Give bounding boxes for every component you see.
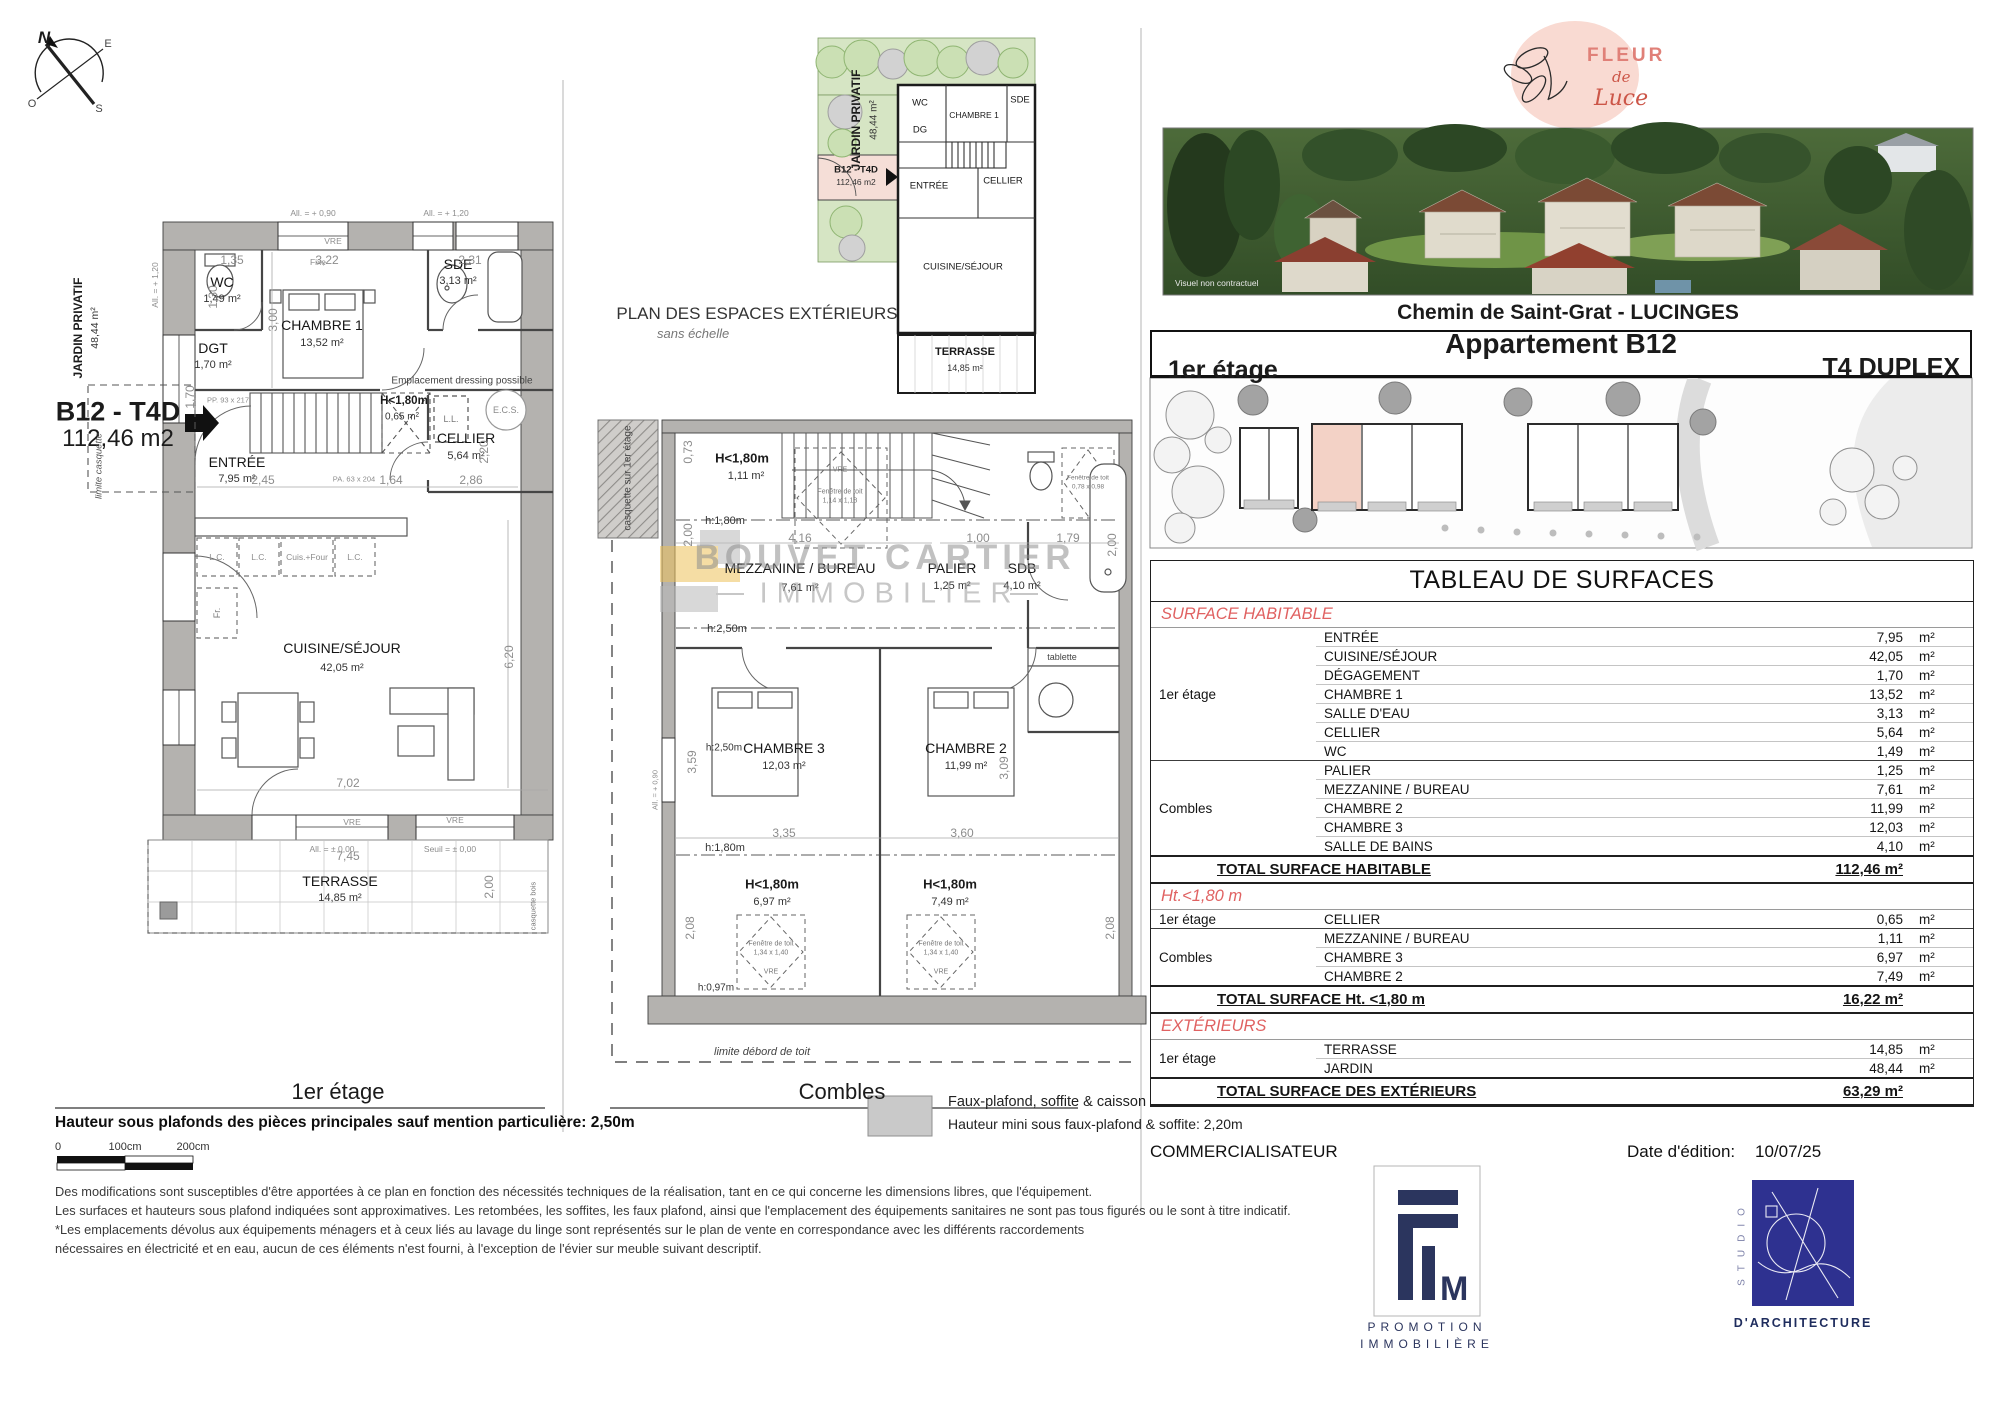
surface-table-cell: m² <box>1911 818 1973 837</box>
fen-c2-size: 1,34 x 1,40 <box>924 950 959 957</box>
surface-table-cell: 1er étage <box>1151 1040 1316 1079</box>
room-h180-area: 0,65 m² <box>385 412 419 423</box>
surface-table-cell: TOTAL SURFACE HABITABLE112,46 m² <box>1151 856 1973 883</box>
ext-terrasse-label: TERRASSE <box>935 346 995 358</box>
surface-table-cell: m² <box>1911 761 1973 780</box>
combles-h111-label: H<1,80m <box>715 451 769 466</box>
dim-200l: 2,00 <box>681 523 695 546</box>
edition-date-label: Date d'édition: <box>1627 1142 1735 1162</box>
dim-130: 1,30 <box>206 285 220 308</box>
surface-table-cell: m² <box>1911 799 1973 818</box>
surface-table-cell: m² <box>1911 929 1973 948</box>
casquette-label: casquette sur 1er étage <box>623 425 634 530</box>
fleur-logo-word1: FLEUR <box>1587 45 1665 67</box>
surface-table-cell: CHAMBRE 3 <box>1316 818 1745 837</box>
fim-sub1: PROMOTION <box>1368 1320 1487 1334</box>
fen-c2-name: Fenêtre de toit <box>918 941 963 948</box>
surface-table-cell: m² <box>1911 967 1973 987</box>
ext-ch1-label: CHAMBRE 1 <box>949 110 999 120</box>
surface-table-cell: SALLE DE BAINS <box>1316 837 1745 857</box>
svg-text:M: M <box>1440 1270 1468 1308</box>
studio-architecture-logo <box>1752 1180 1854 1306</box>
surface-table-cell: Ht.<1,80 m <box>1151 883 1973 910</box>
fen-a-vre: VRE <box>833 467 847 474</box>
surface-table-cell: ComblesMEZZANINE / BUREAU1,11m² <box>1151 929 1973 948</box>
scale-100: 100cm <box>108 1141 141 1153</box>
combles-h749-label: H<1,80m <box>923 877 977 892</box>
combles-h697-label: H<1,80m <box>745 877 799 892</box>
surface-table-cell: SURFACE HABITABLE <box>1151 602 1973 628</box>
counter-four-label: Cuis.+Four <box>286 552 328 562</box>
surface-table-cell: SURFACE HABITABLE <box>1151 602 1973 628</box>
surface-table-cell: 6,97 <box>1745 948 1911 967</box>
combles-h097-label: h:0,97m <box>698 983 734 994</box>
ceiling-height-note: Hauteur sous plafonds des pièces princip… <box>55 1114 635 1132</box>
room-terrasse-area: 14,85 m² <box>318 892 361 904</box>
dim-620: 6,20 <box>502 645 516 668</box>
room-entree-label: ENTRÉE <box>209 454 266 470</box>
combles-h749-area: 7,49 m² <box>931 896 968 908</box>
counter-lc2-label: L.C. <box>251 552 267 562</box>
surface-table-cell: SALLE D'EAU <box>1316 704 1745 723</box>
surface-table-cell: WC <box>1316 742 1745 761</box>
counter-lc1-label: L.C. <box>209 552 225 562</box>
surface-table-cell: 1er étage <box>1151 628 1316 761</box>
disclaimer-line3: *Les emplacements dévolus aux équipement… <box>55 1222 1084 1237</box>
ext-jardin-label: JARDIN PRIVATIF <box>849 70 863 171</box>
dim-073: 0,73 <box>681 440 695 463</box>
frigo-label: Fr. <box>212 608 222 619</box>
tablette-label: tablette <box>1047 652 1077 662</box>
surface-table-cell: CHAMBRE 2 <box>1316 799 1745 818</box>
surface-table-cell: CHAMBRE 3 <box>1316 948 1745 967</box>
dim-309: 3,09 <box>997 756 1011 779</box>
surface-table-cell: 1,49 <box>1745 742 1911 761</box>
combles-ch2-label: CHAMBRE 2 <box>925 740 1007 756</box>
surface-table-cell: m² <box>1911 780 1973 799</box>
compass-o: O <box>28 98 37 110</box>
address-line: Chemin de Saint-Grat - LUCINGES <box>1397 301 1739 325</box>
surface-table-cell: m² <box>1911 837 1973 857</box>
surface-table-cell: 1,70 <box>1745 666 1911 685</box>
aerial-photo <box>1163 122 1973 295</box>
dim-135: 1,35 <box>220 253 243 267</box>
ext-dg-label: DG <box>913 125 927 136</box>
edition-date-value: 10/07/25 <box>1755 1142 1821 1162</box>
combles-ch3-area: 12,03 m² <box>762 760 805 772</box>
floorplan-sheet: M N E S O JARDIN PRIVATIF 48,44 m² B12 -… <box>0 0 2000 1413</box>
surface-table-cell: m² <box>1911 723 1973 742</box>
surface-table-cell: TERRASSE <box>1316 1040 1745 1059</box>
surface-table-cell: 13,52 <box>1745 685 1911 704</box>
combles-h250a-label: h:2,50m <box>707 623 747 635</box>
dim-359: 3,59 <box>685 750 699 773</box>
surface-table-cell: 11,99 <box>1745 799 1911 818</box>
vre-bottom1-label: VRE <box>343 817 360 827</box>
counter-lc3-label: L.C. <box>347 552 363 562</box>
surface-table-cell: TOTAL SURFACE Ht. <1,80 m <box>1151 986 1745 1013</box>
ext-cuisine-label: CUISINE/SÉJOUR <box>923 262 1003 273</box>
surface-table-cell: m² <box>1911 1059 1973 1079</box>
seuil-label: Seuil = ± 0,00 <box>424 844 476 854</box>
surface-table-cell: TOTAL SURFACE HABITABLE <box>1151 856 1745 883</box>
dressing-note: Emplacement dressing possible <box>391 376 532 387</box>
watermark-line2: IMMOBILIER <box>760 578 1021 611</box>
dim-200r: 2,00 <box>1105 533 1119 556</box>
apartment-floor: 1er étage <box>1168 356 1278 385</box>
ext-jardin-area: 48,44 m² <box>869 100 880 139</box>
dim-170: 1,70 <box>183 385 197 408</box>
room-h180-label: H<1,80m <box>380 395 428 407</box>
surface-table-cell: m² <box>1911 647 1973 666</box>
disclaimer-line4: nécessaires en électricité et en eau, au… <box>55 1241 762 1256</box>
compass-e: E <box>104 38 111 50</box>
surface-table-cell: Combles <box>1151 929 1316 987</box>
surface-table-cell: 7,49 <box>1745 967 1911 987</box>
studio-vertical-label: STUDIO <box>1737 1200 1748 1286</box>
jardin-privatif-label: JARDIN PRIVATIF <box>71 278 85 379</box>
surface-table-cell: 5,64 <box>1745 723 1911 742</box>
room-cuisine-area: 42,05 m² <box>320 662 363 674</box>
dim-335: 3,35 <box>772 826 795 840</box>
combles-h250b-label: h:2,50m <box>706 743 742 754</box>
apartment-type: T4 DUPLEX <box>1822 354 1960 383</box>
dim-322: 3,22 <box>315 253 338 267</box>
ext-wc-label: WC <box>912 98 928 109</box>
door-pp-tag: PP. 93 x 217 <box>207 396 249 405</box>
dim-745: 7,45 <box>336 849 359 863</box>
room-sde-area: 3,13 m² <box>439 275 476 287</box>
dim-208l: 2,08 <box>683 916 697 939</box>
surface-table-cell: 0,65 <box>1745 910 1911 929</box>
room-terrasse-label: TERRASSE <box>302 873 377 889</box>
legend-line2: Hauteur mini sous faux-plafond & soffite… <box>948 1116 1243 1132</box>
surface-table-cell: m² <box>1911 704 1973 723</box>
apartment-title: Appartement B12 <box>1445 328 1677 360</box>
dim-360: 3,60 <box>950 826 973 840</box>
exterior-plan-heading: PLAN DES ESPACES EXTÉRIEURS <box>616 304 897 324</box>
scale-200: 200cm <box>176 1141 209 1153</box>
surface-table-cell: 112,46 m² <box>1745 856 1911 883</box>
surface-table-cell: 7,95 <box>1745 628 1911 647</box>
limite-casquette-label: limite casquette <box>94 433 105 499</box>
scale-bar <box>57 1156 193 1170</box>
combles-h180b-label: h:1,80m <box>705 842 745 854</box>
surface-table-cell: m² <box>1911 948 1973 967</box>
disclaimer-line2: Les surfaces et hauteurs sous plafond in… <box>55 1203 1291 1218</box>
allege-120-label: All. = + 1,20 <box>423 208 468 218</box>
fen-a-name: Fenêtre de toit <box>817 489 862 496</box>
surface-table-cell: 12,03 <box>1745 818 1911 837</box>
surface-table-cell: 16,22 m² <box>1745 986 1911 1013</box>
surface-table-cell: CELLIER <box>1316 910 1745 929</box>
surface-table-cell: 1er étageTERRASSE14,85m² <box>1151 1040 1973 1059</box>
casquette-bois-label: casquette bois <box>529 882 538 930</box>
surface-table-cell: MEZZANINE / BUREAU <box>1316 780 1745 799</box>
fleur-logo-word3: Luce <box>1594 86 1648 111</box>
surface-table-cell: CUISINE/SÉJOUR <box>1316 647 1745 666</box>
ext-cellier-label: CELLIER <box>983 176 1023 187</box>
surface-table-cell <box>1911 986 1973 1013</box>
surface-table-cell: ENTRÉE <box>1316 628 1745 647</box>
dim-200: 2,00 <box>482 875 496 898</box>
door-pa-tag: PA. 63 x 204 <box>333 475 375 484</box>
dim-300: 3,00 <box>266 308 280 331</box>
surface-table-grid: SURFACE HABITABLE1er étageENTRÉE7,95m²CU… <box>1151 602 1973 1106</box>
vre-top-label: VRE <box>324 236 341 246</box>
dim-286: 2,86 <box>459 473 482 487</box>
fen-c1-vre: VRE <box>764 969 778 976</box>
compass-n: N <box>38 28 50 48</box>
surface-table-cell: EXTÉRIEURS <box>1151 1013 1973 1040</box>
surface-table-cell: m² <box>1911 742 1973 761</box>
surface-table-cell: m² <box>1911 628 1973 647</box>
surface-table-cell: MEZZANINE / BUREAU <box>1316 929 1745 948</box>
surface-table: TABLEAU DE SURFACES SURFACE HABITABLE1er… <box>1150 560 1974 1107</box>
room-entree-area: 7,95 m² <box>218 473 255 485</box>
surface-table-cell: Ht.<1,80 m <box>1151 883 1973 910</box>
exterior-plan-subheading: sans échelle <box>657 326 729 341</box>
surface-table-cell: 1er étage <box>1151 910 1316 929</box>
surface-table-cell: ComblesPALIER1,25m² <box>1151 761 1973 780</box>
surface-table-cell: EXTÉRIEURS <box>1151 1013 1973 1040</box>
limite-debord-label: limite débord de toit <box>714 1046 810 1058</box>
unit-area: 112,46 m2 <box>62 425 174 453</box>
allege-left-label: All. = + 1,20 <box>150 262 160 307</box>
room-ch1-area: 13,52 m² <box>300 337 343 349</box>
surface-table-cell: TOTAL SURFACE DES EXTÉRIEURS63,29 m² <box>1151 1078 1973 1105</box>
fen-b-name: Fenêtre de toit <box>1067 475 1109 482</box>
jardin-privatif-area: 48,44 m² <box>89 307 101 348</box>
room-ch1-label: CHAMBRE 1 <box>281 317 363 333</box>
unit-code: B12 - T4D <box>56 397 181 428</box>
allege-090-label: All. = + 0,90 <box>290 208 335 218</box>
surface-table-cell: 1er étageENTRÉE7,95m² <box>1151 628 1973 647</box>
ext-sde-label: SDE <box>1010 95 1030 106</box>
surface-table-cell: 7,61 <box>1745 780 1911 799</box>
surface-table-cell: TOTAL SURFACE Ht. <1,80 m16,22 m² <box>1151 986 1973 1013</box>
scale-0: 0 <box>55 1141 61 1153</box>
surface-table-cell: 14,85 <box>1745 1040 1911 1059</box>
site-plan <box>1150 378 1972 548</box>
surface-table-cell: 1er étageCELLIER0,65m² <box>1151 910 1973 929</box>
surface-table-cell: JARDIN <box>1316 1059 1745 1079</box>
combles-h180-line-label: h:1,80m <box>705 515 745 527</box>
disclaimer-line1: Des modifications sont susceptibles d'êt… <box>55 1184 1092 1199</box>
ext-terrasse-area: 14,85 m² <box>947 363 983 373</box>
dim-231: 2,31 <box>458 253 481 267</box>
surface-table-cell: 1,25 <box>1745 761 1911 780</box>
surface-table-cell: 1,11 <box>1745 929 1911 948</box>
room-dgt-label: DGT <box>198 340 228 356</box>
surface-table-cell: 3,13 <box>1745 704 1911 723</box>
fen-a-size: 1,14 x 1,18 <box>823 498 858 505</box>
combles-h111-area: 1,11 m² <box>728 470 764 482</box>
surface-table-cell: DÉGAGEMENT <box>1316 666 1745 685</box>
room-dgt-area: 1,70 m² <box>194 359 231 371</box>
ecs-label: E.C.S. <box>493 405 519 415</box>
watermark-line1: BOUVET CARTIER <box>694 538 1075 578</box>
room-cuisine-label: CUISINE/SÉJOUR <box>283 640 400 656</box>
surface-table-cell: 63,29 m² <box>1745 1078 1911 1105</box>
fen-c1-size: 1,34 x 1,40 <box>754 950 789 957</box>
combles-h697-area: 6,97 m² <box>753 896 790 908</box>
surface-table-cell <box>1911 1078 1973 1105</box>
compass-s: S <box>95 103 102 115</box>
fleur-logo-word2: de <box>1612 68 1630 86</box>
dim-220: 2,20 <box>477 440 491 463</box>
studio-caption: D'ARCHITECTURE <box>1734 1316 1873 1330</box>
combles-ch2-area: 11,99 m² <box>945 760 988 772</box>
surface-table-cell: m² <box>1911 685 1973 704</box>
fen-b-size: 0,78 x 0,98 <box>1072 484 1104 491</box>
ll-label: L.L. <box>443 414 458 424</box>
fim-logo: M <box>1374 1166 1480 1316</box>
surface-table-cell: m² <box>1911 910 1973 929</box>
surface-table-cell: 42,05 <box>1745 647 1911 666</box>
surface-table-cell: m² <box>1911 666 1973 685</box>
fen-c1-name: Fenêtre de toit <box>748 941 793 948</box>
ext-entree-label: ENTRÉE <box>910 181 949 192</box>
dim-164: 1,64 <box>379 473 402 487</box>
combles-title: Combles <box>799 1079 886 1105</box>
combles-ch3-label: CHAMBRE 3 <box>743 740 825 756</box>
fim-sub2: IMMOBILIÈRE <box>1360 1337 1494 1351</box>
dim-702: 7,02 <box>336 776 359 790</box>
photo-caption: Visuel non contractuel <box>1175 278 1258 288</box>
surface-table-cell: 48,44 <box>1745 1059 1911 1079</box>
surface-table-cell: m² <box>1911 1040 1973 1059</box>
surface-table-title: TABLEAU DE SURFACES <box>1151 561 1973 602</box>
surface-table-cell: PALIER <box>1316 761 1745 780</box>
fen-c2-vre: VRE <box>934 969 948 976</box>
surface-table-cell: TOTAL SURFACE DES EXTÉRIEURS <box>1151 1078 1745 1105</box>
surface-table-cell: 4,10 <box>1745 837 1911 857</box>
floor1-title: 1er étage <box>292 1079 385 1105</box>
surface-table-cell: CHAMBRE 2 <box>1316 967 1745 987</box>
surface-table-cell <box>1911 856 1973 883</box>
dim-245: 2,45 <box>251 473 274 487</box>
ext-unit-code: B12 - T4D <box>834 165 878 176</box>
vre-bottom2-label: VRE <box>446 815 463 825</box>
surface-table-cell: CELLIER <box>1316 723 1745 742</box>
surface-table-cell: Combles <box>1151 761 1316 857</box>
dim-208r: 2,08 <box>1103 916 1117 939</box>
floor1-plan <box>55 222 553 1108</box>
surface-table-cell: CHAMBRE 1 <box>1316 685 1745 704</box>
ext-unit-area: 112,46 m2 <box>836 177 876 187</box>
commercialisateur-label: COMMERCIALISATEUR <box>1150 1142 1338 1162</box>
combles-allege-label: All. = + 0,90 <box>651 770 660 810</box>
